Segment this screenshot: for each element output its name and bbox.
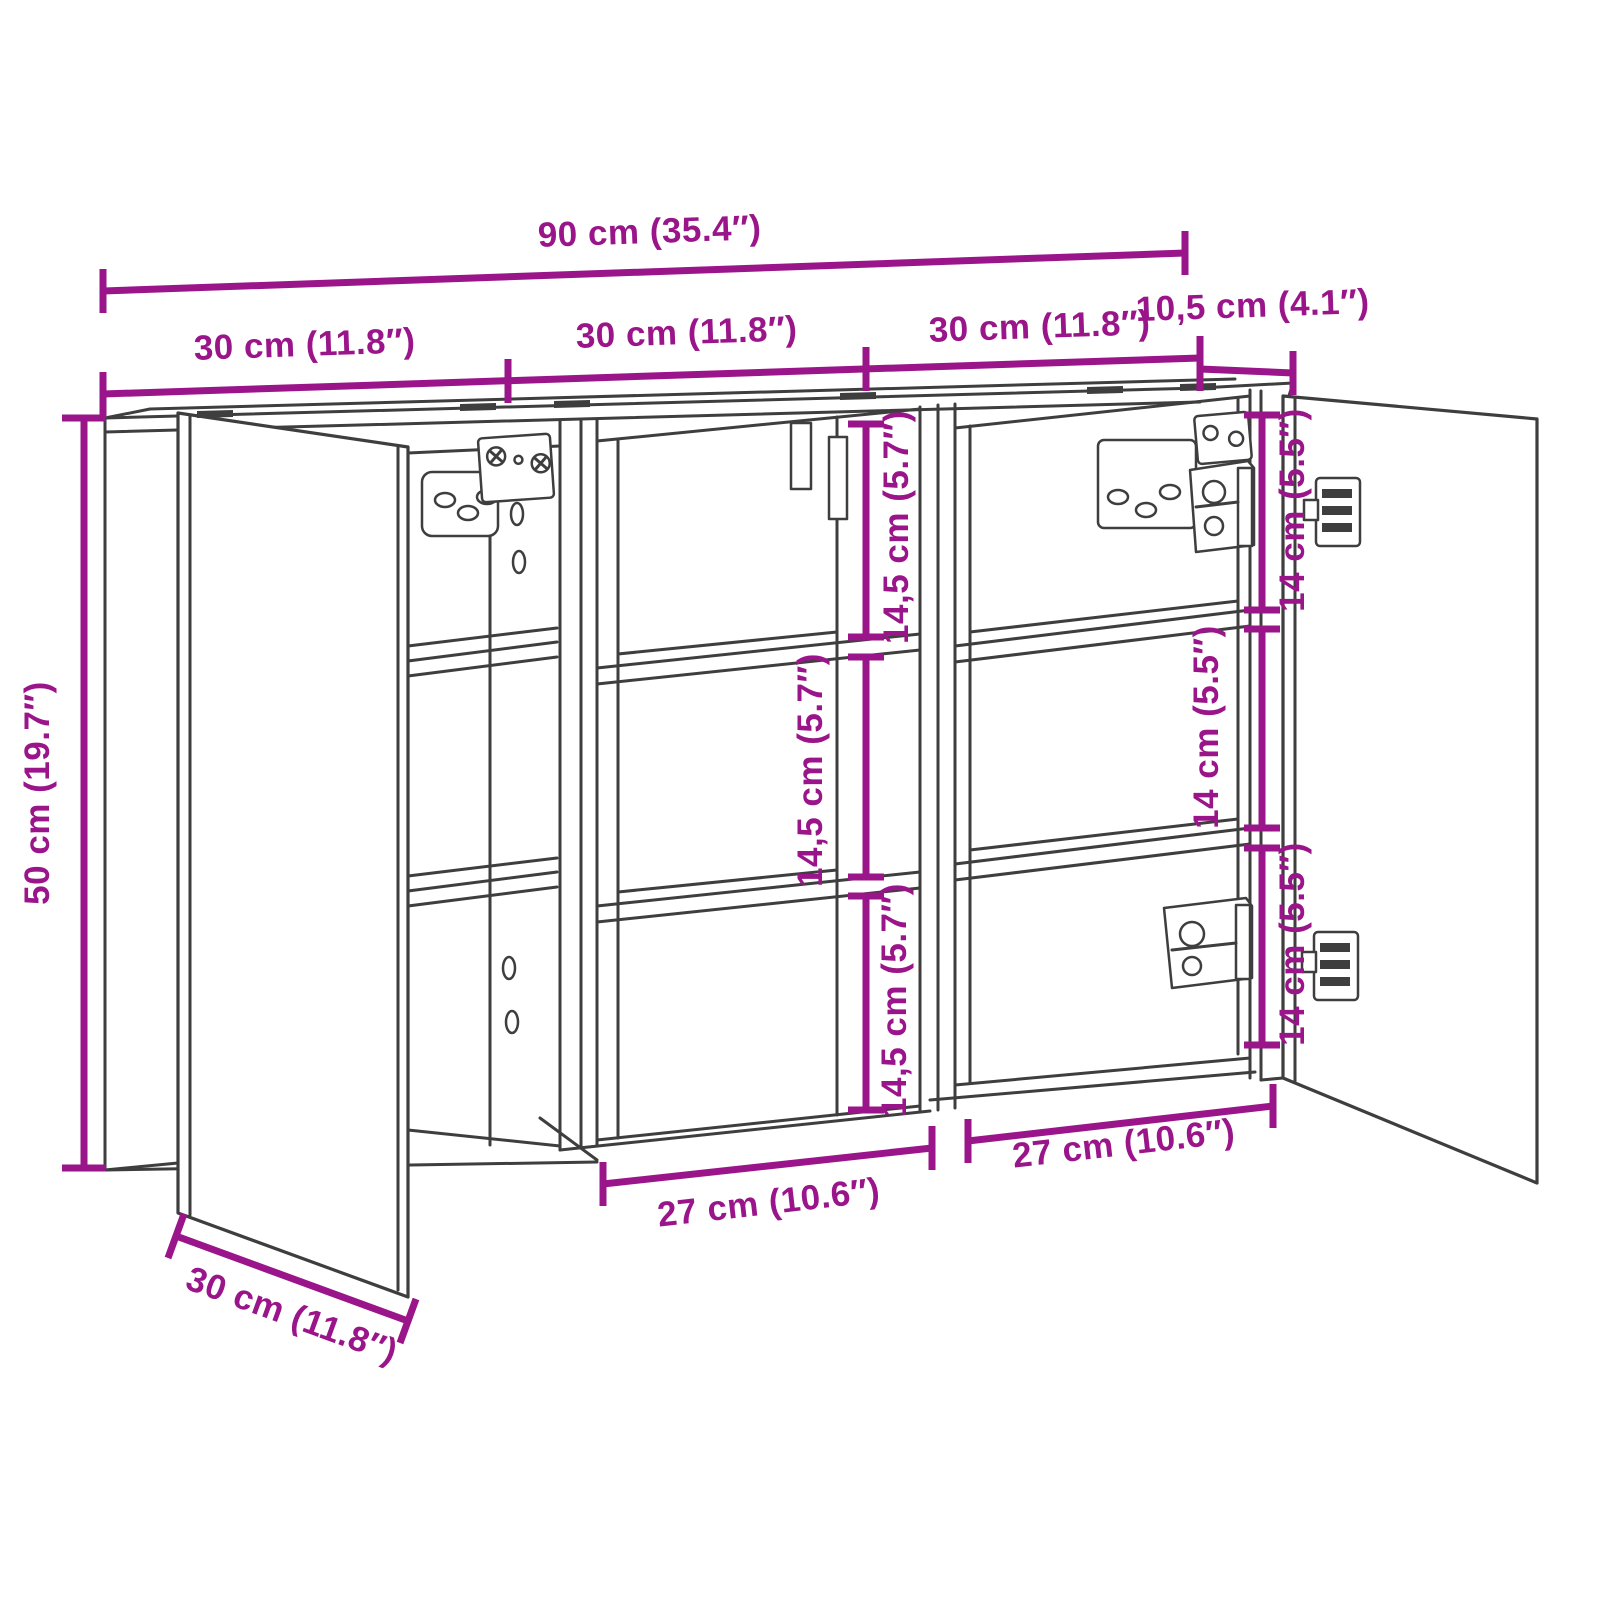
- dim-label-right-top: 14 cm (5.5″): [1273, 408, 1312, 612]
- dim-top-depth: 10,5 cm (4.1″): [1135, 282, 1370, 395]
- dim-label-section-right: 30 cm (11.8″): [928, 303, 1151, 350]
- dim-label-section-middle: 30 cm (11.8″): [575, 309, 798, 356]
- dim-section-widths: 30 cm (11.8″) 30 cm (11.8″) 30 cm (11.8″…: [103, 303, 1200, 416]
- dim-label-middle-mid: 14,5 cm (5.7″): [791, 653, 830, 887]
- dim-inner-width-middle: 27 cm (10.6″): [603, 1126, 932, 1235]
- dim-label-section-left: 30 cm (11.8″): [193, 321, 416, 368]
- dim-label-height: 50 cm (19.7″): [18, 681, 57, 905]
- cabinet-dimension-diagram: 90 cm (35.4″) 30 cm (11.8″) 30 cm (11.8″…: [0, 0, 1600, 1600]
- left-partition: [560, 419, 597, 1150]
- dim-height: 50 cm (19.7″): [18, 418, 106, 1168]
- dim-middle-compartments: 14,5 cm (5.7″) 14,5 cm (5.7″) 14,5 cm (5…: [791, 410, 916, 1117]
- dim-label-right-mid: 14 cm (5.5″): [1187, 625, 1226, 829]
- left-door: [178, 413, 408, 1297]
- left-section-interior: [408, 446, 597, 1160]
- dim-overall-width: 90 cm (35.4″): [103, 208, 1185, 313]
- right-partition: [920, 404, 955, 1112]
- hinge-left-top: [422, 434, 554, 1033]
- middle-section-brackets: [791, 423, 847, 519]
- dim-label-overall-width: 90 cm (35.4″): [537, 208, 762, 255]
- dim-label-inner-middle: 27 cm (10.6″): [655, 1171, 882, 1235]
- dim-label-right-bottom: 14 cm (5.5″): [1273, 842, 1312, 1046]
- dim-label-top-depth: 10,5 cm (4.1″): [1135, 282, 1370, 329]
- dim-inner-width-right: 27 cm (10.6″): [968, 1084, 1273, 1176]
- dim-label-middle-bottom: 14,5 cm (5.7″): [875, 883, 914, 1117]
- dim-label-middle-top: 14,5 cm (5.7″): [877, 410, 916, 644]
